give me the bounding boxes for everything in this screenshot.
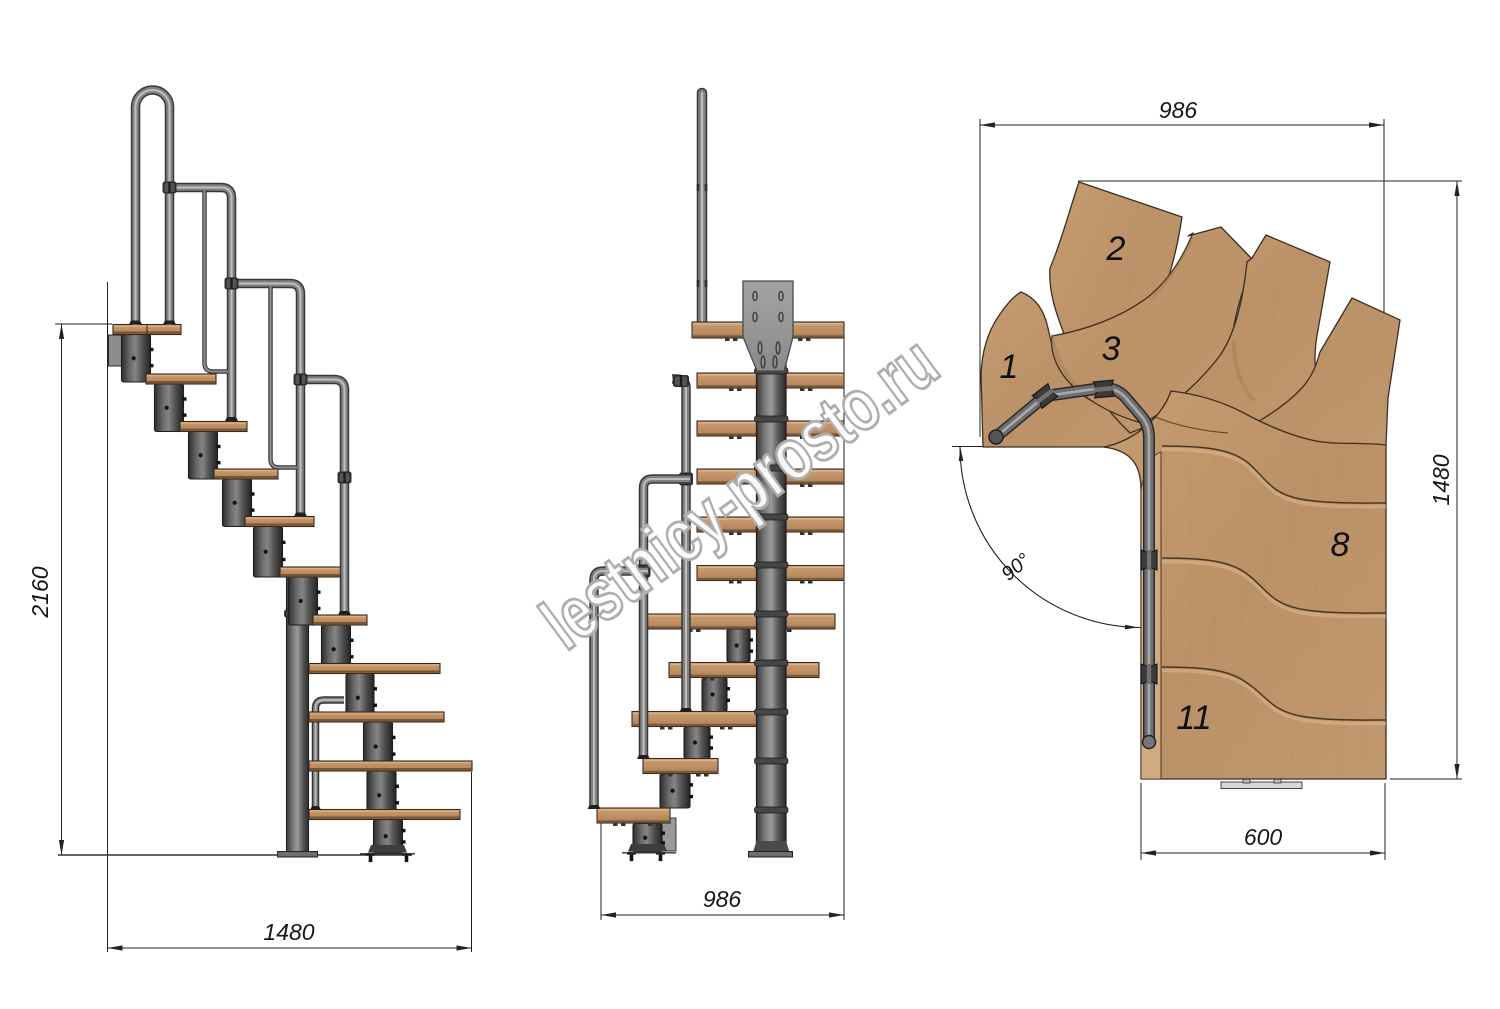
svg-text:986: 986 bbox=[1159, 97, 1198, 123]
svg-text:11: 11 bbox=[1176, 699, 1211, 737]
svg-text:lestnicy-prosto.ru: lestnicy-prosto.ru bbox=[526, 320, 952, 665]
svg-text:3: 3 bbox=[1102, 330, 1121, 368]
svg-text:2: 2 bbox=[1106, 230, 1126, 268]
svg-text:1480: 1480 bbox=[263, 919, 314, 945]
svg-text:90°: 90° bbox=[997, 549, 1034, 585]
svg-text:2160: 2160 bbox=[27, 566, 53, 618]
svg-text:1480: 1480 bbox=[1428, 454, 1454, 505]
svg-text:8: 8 bbox=[1331, 526, 1350, 564]
svg-text:986: 986 bbox=[703, 886, 742, 912]
svg-text:600: 600 bbox=[1244, 824, 1283, 850]
svg-text:1: 1 bbox=[1000, 348, 1019, 386]
